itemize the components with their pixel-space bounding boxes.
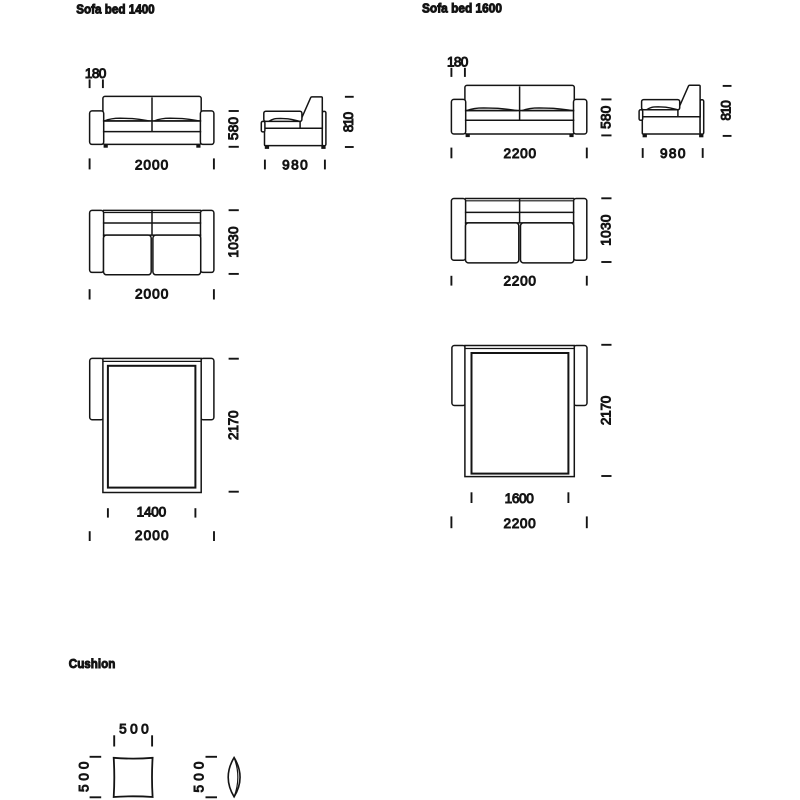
svg-text:Cushion: Cushion: [69, 656, 116, 671]
svg-text:1400: 1400: [137, 505, 167, 520]
svg-text:2170: 2170: [226, 410, 241, 440]
svg-text:500: 500: [77, 761, 92, 792]
svg-text:Sofa bed 1600: Sofa bed 1600: [422, 0, 502, 15]
svg-text:500: 500: [192, 761, 207, 792]
svg-text:2170: 2170: [599, 395, 614, 425]
svg-text:2000: 2000: [135, 157, 169, 172]
svg-text:810: 810: [341, 111, 356, 132]
svg-text:2200: 2200: [504, 146, 537, 161]
svg-text:2000: 2000: [135, 287, 169, 302]
svg-text:580: 580: [226, 116, 241, 140]
svg-text:Sofa bed 1400: Sofa bed 1400: [76, 2, 155, 17]
svg-text:180: 180: [447, 55, 469, 70]
svg-text:1030: 1030: [599, 214, 614, 246]
svg-text:1030: 1030: [226, 226, 241, 258]
svg-text:180: 180: [85, 66, 107, 81]
svg-text:2000: 2000: [135, 528, 169, 543]
svg-text:2200: 2200: [503, 273, 536, 288]
svg-text:810: 810: [719, 100, 734, 121]
svg-text:500: 500: [119, 721, 149, 736]
svg-text:2200: 2200: [504, 516, 537, 531]
svg-text:980: 980: [660, 146, 686, 161]
svg-text:1600: 1600: [505, 491, 535, 506]
svg-text:580: 580: [599, 105, 614, 129]
svg-text:980: 980: [282, 157, 308, 172]
